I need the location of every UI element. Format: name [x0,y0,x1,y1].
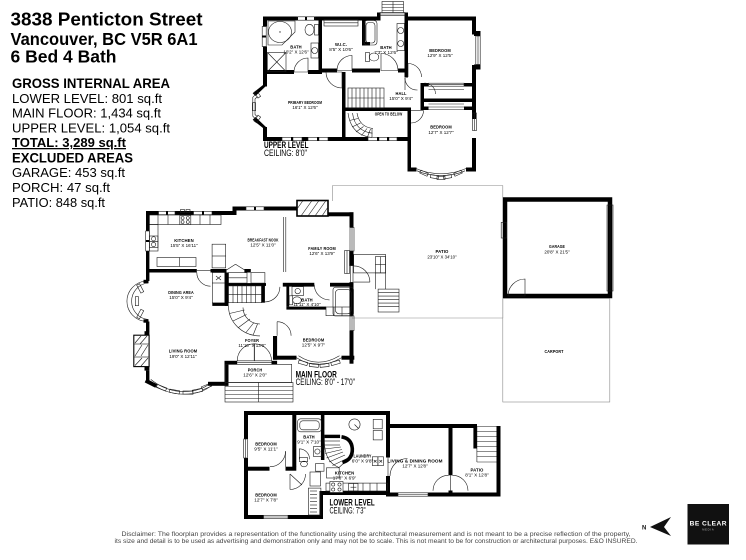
svg-text:10'2" X 12'6": 10'2" X 12'6" [283,50,309,55]
svg-text:CEILING: 7'3": CEILING: 7'3" [330,506,366,516]
svg-text:EXCLUDED AREAS: EXCLUDED AREAS [12,151,133,166]
svg-text:N: N [642,526,646,532]
svg-text:12'6" X 2'0": 12'6" X 2'0" [243,373,267,378]
svg-text:GARAGE: 453 sq.ft: GARAGE: 453 sq.ft [12,165,125,180]
svg-text:MEDIA: MEDIA [702,528,714,532]
svg-text:GARAGE: GARAGE [549,244,565,249]
svg-text:12'7" X 12'7": 12'7" X 12'7" [428,130,454,135]
svg-text:GROSS INTERNAL AREA: GROSS INTERNAL AREA [12,76,170,91]
svg-text:3838 Penticton Street: 3838 Penticton Street [11,9,204,30]
svg-text:PATIO: PATIO [436,249,449,254]
svg-text:BE CLEAR: BE CLEAR [690,521,727,528]
svg-text:19'0" X 12'11": 19'0" X 12'11" [169,354,197,359]
svg-text:12'5" X 9'7": 12'5" X 9'7" [302,343,326,348]
svg-text:LOWER LEVEL: 801 sq.ft: LOWER LEVEL: 801 sq.ft [12,91,162,106]
svg-text:CEILING: 8'0": CEILING: 8'0" [264,148,307,158]
svg-text:LIVING ROOM: LIVING ROOM [169,349,198,354]
svg-text:12'9" X 12'5": 12'9" X 12'5" [427,53,453,58]
svg-text:12'7" X 7'8": 12'7" X 7'8" [254,498,278,503]
svg-text:8'1" X 12'8": 8'1" X 12'8" [465,473,489,478]
svg-text:20'8" X 21'5": 20'8" X 21'5" [544,250,570,255]
svg-text:PORCH: 47 sq.ft: PORCH: 47 sq.ft [12,180,110,195]
svg-text:TOTAL: 3,289 sq.ft: TOTAL: 3,289 sq.ft [12,135,127,150]
svg-text:OPEN TO BELOW: OPEN TO BELOW [375,112,403,117]
svg-text:CARPORT: CARPORT [545,349,564,354]
svg-text:11'11" X 4'10": 11'11" X 4'10" [293,302,321,307]
svg-text:6'0" X 9'8": 6'0" X 9'8" [352,459,374,464]
svg-text:BEDROOM: BEDROOM [430,125,452,130]
svg-text:12'6" X 13'9": 12'6" X 13'9" [309,251,335,256]
svg-text:9'5" X 11'1": 9'5" X 11'1" [254,447,278,452]
svg-text:12'7" X 12'8": 12'7" X 12'8" [402,464,428,469]
svg-text:12'5" X 11'0": 12'5" X 11'0" [250,243,276,248]
svg-text:MAIN FLOOR: 1,434 sq.ft: MAIN FLOOR: 1,434 sq.ft [12,106,161,121]
svg-text:UPPER LEVEL: 1,054 sq.ft: UPPER LEVEL: 1,054 sq.ft [12,121,170,136]
svg-text:15'0" X 9'4": 15'0" X 9'4" [389,96,413,101]
svg-text:Disclaimer: The floorplan prov: Disclaimer: The floorplan provides a rep… [122,532,631,538]
svg-text:CEILING: 8'0" - 17'0": CEILING: 8'0" - 17'0" [296,377,355,387]
svg-text:23'10" X 34'10": 23'10" X 34'10" [427,255,457,260]
svg-text:PATIO: 848 sq.ft: PATIO: 848 sq.ft [12,195,105,210]
svg-text:9'1" X 7'10": 9'1" X 7'10" [297,440,321,445]
svg-text:8'5" X 10'6": 8'5" X 10'6" [329,47,353,52]
svg-text:16'1" X 12'6": 16'1" X 12'6" [292,105,318,110]
svg-text:its size and detail is to be u: its size and detail is to be used as adv… [115,539,638,545]
svg-text:15'5" X 16'11": 15'5" X 16'11" [170,243,198,248]
svg-text:6 Bed 4 Bath: 6 Bed 4 Bath [11,47,117,67]
svg-text:15'0" X 9'4": 15'0" X 9'4" [169,295,193,300]
svg-text:17'8" X 6'9": 17'8" X 6'9" [333,476,357,481]
